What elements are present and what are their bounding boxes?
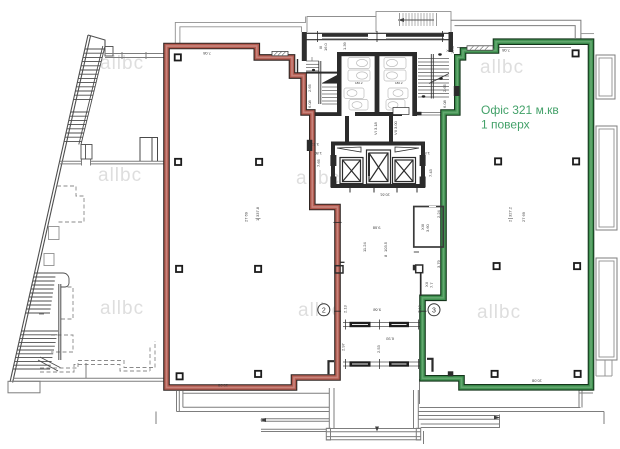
svg-text:2.65: 2.65 [442,83,447,92]
svg-text:16.0: 16.0 [450,45,455,54]
svg-text:2.65: 2.65 [307,83,312,92]
svg-text:2.53: 2.53 [376,344,381,353]
svg-text:180.2: 180.2 [355,81,363,85]
svg-text:2: 2 [322,307,326,314]
svg-text:103.5: 103.5 [383,241,388,252]
svg-text:7.08: 7.08 [501,48,510,53]
svg-text:allbc: allbc [98,165,142,186]
svg-text:allbc: allbc [480,57,524,78]
svg-text:2.13: 2.13 [417,304,422,313]
svg-text:11.24: 11.24 [362,242,367,252]
svg-text:VI: VI [373,131,378,135]
svg-text:1.80: 1.80 [421,151,430,156]
svg-text:VII: VII [393,130,398,135]
svg-text:3.18: 3.18 [373,121,378,130]
svg-text:10.61: 10.61 [379,193,390,198]
svg-text:27 69: 27 69 [244,211,249,222]
svg-text:7.43: 7.43 [428,168,433,177]
svg-text:337.8: 337.8 [255,206,260,217]
svg-text:6.08: 6.08 [442,99,447,108]
svg-text:10.08: 10.08 [531,379,542,384]
svg-text:2.24: 2.24 [436,209,441,218]
svg-text:1.80: 1.80 [313,151,322,156]
svg-text:7.08: 7.08 [202,51,211,56]
svg-text:1 поверх: 1 поверх [481,118,530,132]
svg-text:allbc: allbc [100,298,144,319]
svg-text:27 69: 27 69 [521,211,526,222]
svg-text:10.08: 10.08 [217,383,228,388]
svg-text:6.93: 6.93 [385,337,394,342]
svg-text:3.60: 3.60 [425,223,430,232]
svg-text:2.13: 2.13 [343,304,348,313]
svg-text:16.0: 16.0 [323,42,328,51]
svg-text:allbc: allbc [477,302,521,323]
svg-text:Офіс 321 м.кв: Офіс 321 м.кв [481,103,559,117]
svg-text:2.97: 2.97 [341,342,346,351]
svg-text:3.47: 3.47 [310,142,319,147]
svg-text:3.79: 3.79 [436,259,441,268]
svg-text:6.08: 6.08 [307,99,312,108]
svg-text:180.2: 180.2 [395,81,403,85]
svg-text:3.00: 3.00 [393,120,398,129]
svg-text:7.7: 7.7 [429,282,434,288]
svg-text:7.65: 7.65 [316,158,321,167]
svg-text:9.68: 9.68 [372,308,381,313]
svg-text:1.39: 1.39 [342,41,347,50]
svg-text:3.42: 3.42 [415,142,424,147]
svg-text:3: 3 [432,307,436,314]
svg-text:327.2: 327.2 [508,206,513,217]
svg-text:9.68: 9.68 [372,226,381,231]
